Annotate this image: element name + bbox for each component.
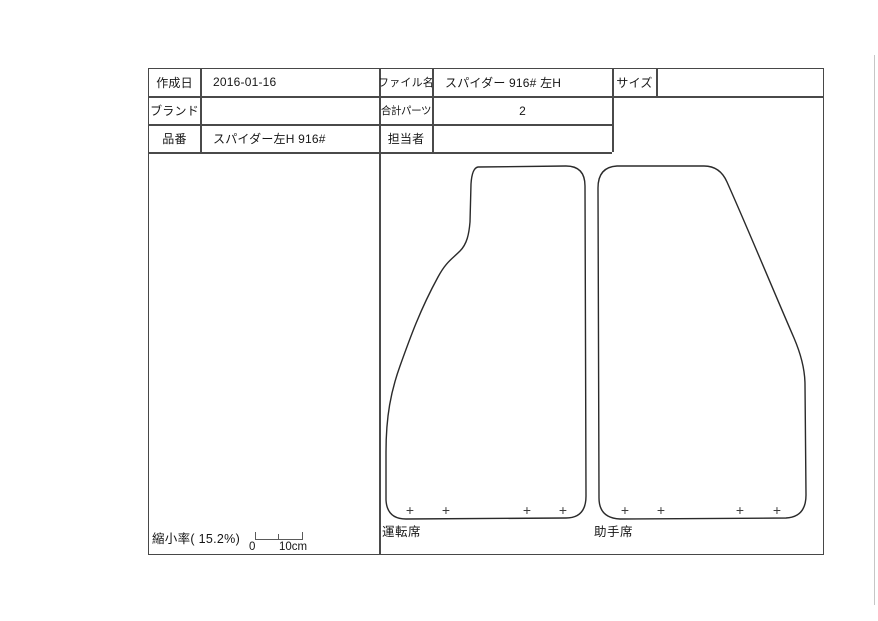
file-name-label: ファイル名 [380, 68, 432, 96]
scale-bar-tick-right [302, 532, 303, 539]
part-number-label: 品番 [149, 125, 200, 152]
total-parts-value: 2 [433, 97, 612, 124]
plus-marker-icon: + [621, 503, 629, 517]
size-value [657, 68, 823, 96]
scanned-spec-sheet: { "page": { "background": "#ffffff", "li… [0, 0, 878, 621]
scale-bar-zero-label: 0 [249, 541, 255, 553]
plus-marker-icon: + [523, 503, 531, 517]
created-date-label: 作成日 [149, 68, 200, 96]
size-label: サイズ [613, 68, 656, 96]
total-parts-label: 合計パーツ [380, 97, 432, 124]
brand-label: ブランド [149, 97, 200, 124]
driver-mat-label: 運転席 [382, 521, 421, 540]
reduction-ratio-text: 縮小率( 15.2%) [152, 528, 240, 547]
passenger-mat-label: 助手席 [594, 521, 633, 540]
scan-edge-artifact [874, 55, 875, 605]
plus-marker-icon: + [406, 503, 414, 517]
plus-marker-icon: + [773, 503, 781, 517]
created-date-value: 2016-01-16 [201, 68, 379, 96]
person-in-charge-value [433, 125, 612, 152]
plus-marker-icon: + [657, 503, 665, 517]
scale-bar-tick-middle [278, 534, 279, 539]
plus-marker-icon: + [442, 503, 450, 517]
part-number-value: スパイダー左H 916# [201, 125, 379, 152]
plus-marker-icon: + [736, 503, 744, 517]
scale-bar [255, 531, 303, 540]
plus-marker-icon: + [559, 503, 567, 517]
scale-bar-max-label: 10cm [279, 541, 307, 553]
scale-bar-tick-left [255, 532, 256, 539]
person-in-charge-label: 担当者 [380, 125, 432, 152]
file-name-value: スパイダー 916# 左H [433, 68, 612, 96]
brand-value [201, 97, 379, 124]
